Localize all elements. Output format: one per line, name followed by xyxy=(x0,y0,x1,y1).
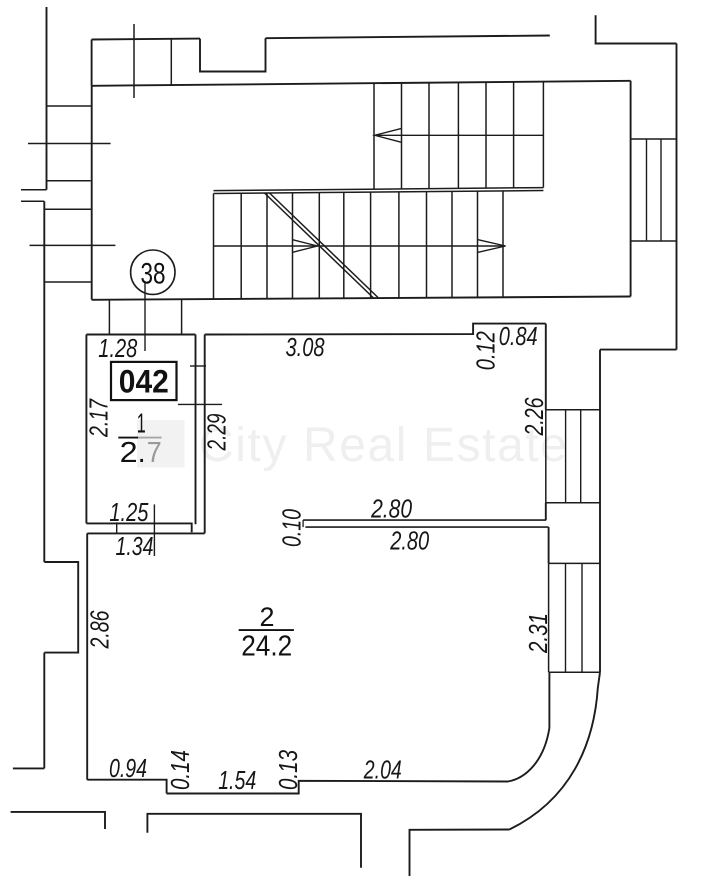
svg-text:2.29: 2.29 xyxy=(202,414,232,452)
svg-text:0.94: 0.94 xyxy=(109,753,147,783)
svg-text:2.80: 2.80 xyxy=(370,493,412,523)
svg-text:0.84: 0.84 xyxy=(499,321,538,351)
svg-text:7: 7 xyxy=(147,437,162,469)
svg-text:0.10: 0.10 xyxy=(277,509,307,547)
svg-text:2.80: 2.80 xyxy=(389,526,429,556)
svg-text:0.13: 0.13 xyxy=(273,750,303,790)
svg-text:1.54: 1.54 xyxy=(218,765,256,795)
svg-text:0.14: 0.14 xyxy=(165,750,195,790)
svg-text:2.26: 2.26 xyxy=(519,397,549,436)
svg-text:2.17: 2.17 xyxy=(84,398,114,438)
svg-text:2: 2 xyxy=(120,437,138,469)
svg-text:2.31: 2.31 xyxy=(523,613,553,654)
svg-text:1.25: 1.25 xyxy=(109,497,148,527)
svg-text:2.86: 2.86 xyxy=(84,610,114,649)
svg-text:.: . xyxy=(138,437,146,469)
svg-text:City Real Estate: City Real Estate xyxy=(199,419,567,472)
svg-text:2.04: 2.04 xyxy=(363,755,402,785)
svg-text:38: 38 xyxy=(141,257,166,290)
svg-text:0.12: 0.12 xyxy=(470,331,500,370)
svg-text:1: 1 xyxy=(137,408,146,439)
svg-text:042: 042 xyxy=(119,364,169,400)
svg-text:2: 2 xyxy=(260,602,275,632)
svg-text:24.2: 24.2 xyxy=(241,630,292,662)
svg-text:1.28: 1.28 xyxy=(98,333,137,363)
svg-text:3.08: 3.08 xyxy=(286,332,325,362)
svg-text:1.34: 1.34 xyxy=(116,531,154,561)
